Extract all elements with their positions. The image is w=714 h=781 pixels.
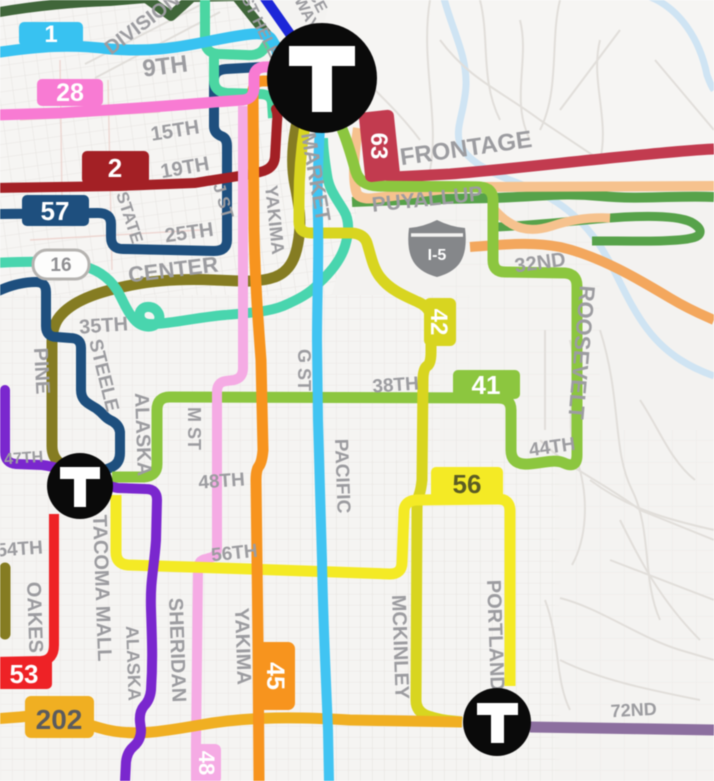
svg-text:I-5: I-5 [428, 247, 447, 264]
svg-text:54TH: 54TH [0, 537, 44, 561]
svg-text:41: 41 [472, 370, 501, 400]
svg-text:47TH: 47TH [4, 449, 44, 469]
svg-text:OAKES: OAKES [22, 581, 46, 653]
svg-text:63: 63 [365, 133, 392, 160]
svg-text:MCKINLEY: MCKINLEY [387, 594, 413, 700]
svg-text:9TH: 9TH [141, 50, 189, 82]
svg-text:53: 53 [10, 659, 39, 689]
svg-text:ALASKA: ALASKA [130, 392, 155, 476]
svg-text:PACIFIC: PACIFIC [330, 438, 354, 514]
svg-text:72ND: 72ND [610, 699, 657, 721]
svg-text:48TH: 48TH [198, 469, 246, 493]
svg-text:16: 16 [50, 255, 71, 276]
svg-text:28: 28 [56, 79, 84, 107]
svg-text:35TH: 35TH [78, 313, 128, 338]
svg-text:42: 42 [425, 309, 452, 336]
svg-text:202: 202 [36, 704, 83, 735]
svg-text:SHERIDAN: SHERIDAN [164, 597, 190, 702]
svg-text:57: 57 [41, 196, 70, 226]
svg-text:45: 45 [261, 662, 289, 690]
svg-text:ALASKA: ALASKA [122, 625, 145, 701]
svg-text:M ST: M ST [184, 407, 204, 450]
svg-text:PORTLAND: PORTLAND [482, 579, 508, 691]
svg-text:YAKIMA: YAKIMA [230, 607, 255, 685]
svg-text:38TH: 38TH [372, 373, 420, 397]
svg-text:56: 56 [453, 469, 482, 499]
svg-text:48: 48 [194, 751, 219, 775]
svg-text:G ST: G ST [294, 349, 314, 391]
svg-text:PINE: PINE [29, 347, 53, 395]
svg-text:1: 1 [44, 21, 57, 48]
svg-text:2: 2 [108, 153, 122, 183]
